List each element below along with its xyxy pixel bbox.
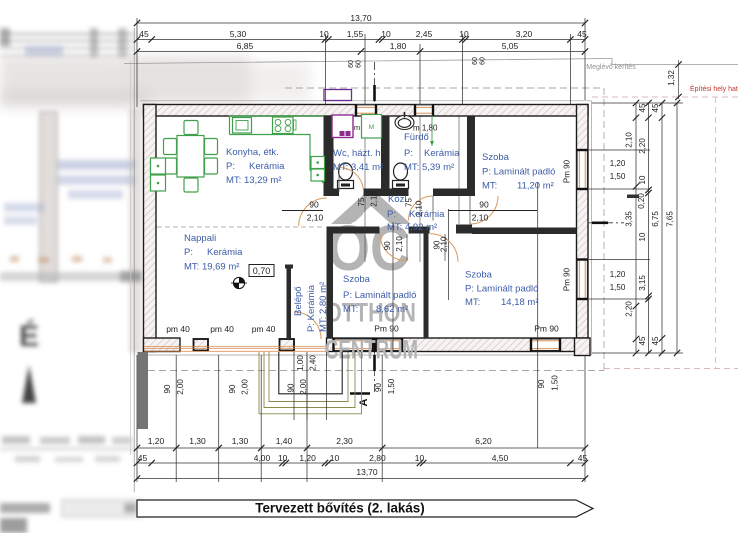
svg-text:Szoba: Szoba xyxy=(343,274,371,285)
svg-text:MT: 5,39 m²: MT: 5,39 m² xyxy=(404,162,454,173)
svg-text:P:: P: xyxy=(404,148,413,159)
svg-text:Pm 90: Pm 90 xyxy=(374,324,399,334)
svg-text:Tervezett bővítés (2. lakás): Tervezett bővítés (2. lakás) xyxy=(255,501,424,516)
svg-text:Konyha, étk.: Konyha, étk. xyxy=(226,147,279,158)
svg-text:MT: 19,69 m²: MT: 19,69 m² xyxy=(184,262,239,273)
svg-text:10: 10 xyxy=(459,29,469,39)
svg-text:45: 45 xyxy=(139,29,149,39)
svg-text:MT:: MT: xyxy=(343,304,358,315)
svg-text:P:: P: xyxy=(184,247,193,258)
svg-text:pm 40: pm 40 xyxy=(252,324,276,334)
svg-text:Kerámia: Kerámia xyxy=(424,148,460,159)
svg-text:P: Kerámia: P: Kerámia xyxy=(306,284,317,332)
svg-text:1,20: 1,20 xyxy=(148,436,165,446)
svg-text:2,10: 2,10 xyxy=(395,236,404,252)
svg-text:60: 60 xyxy=(480,57,487,65)
svg-text:1,50: 1,50 xyxy=(610,172,626,181)
svg-text:6,75: 6,75 xyxy=(651,211,660,227)
svg-text:2,45: 2,45 xyxy=(416,29,433,39)
svg-text:1,50: 1,50 xyxy=(551,375,560,391)
svg-text:90: 90 xyxy=(374,383,383,392)
svg-text:45: 45 xyxy=(578,453,588,463)
svg-text:10: 10 xyxy=(381,29,391,39)
svg-text:60: 60 xyxy=(356,60,363,68)
svg-text:Szoba: Szoba xyxy=(482,152,510,163)
svg-text:3,20: 3,20 xyxy=(516,29,533,39)
svg-text:CENTRUM: CENTRUM xyxy=(325,335,418,365)
svg-text:1,20: 1,20 xyxy=(299,453,316,463)
svg-text:A: A xyxy=(358,398,370,406)
svg-text:P: Laminált padló: P: Laminált padló xyxy=(343,290,416,301)
svg-text:MT: 4,92 m²: MT: 4,92 m² xyxy=(387,222,437,233)
svg-text:13,70: 13,70 xyxy=(350,13,372,23)
svg-text:45: 45 xyxy=(638,336,647,345)
svg-text:pm 40: pm 40 xyxy=(210,324,234,334)
svg-text:Nappali: Nappali xyxy=(184,233,216,244)
svg-text:45: 45 xyxy=(651,336,660,345)
svg-text:P:: P: xyxy=(226,161,235,172)
svg-text:Pm 90: Pm 90 xyxy=(563,267,572,291)
svg-text:1,50: 1,50 xyxy=(610,283,626,292)
svg-text:10: 10 xyxy=(330,453,340,463)
svg-text:6,85: 6,85 xyxy=(237,41,254,51)
svg-text:Közl.: Közl. xyxy=(388,194,409,205)
svg-text:5,05: 5,05 xyxy=(502,41,519,51)
svg-text:60: 60 xyxy=(472,57,479,65)
svg-text:Szoba: Szoba xyxy=(465,270,493,281)
svg-text:2,40: 2,40 xyxy=(309,355,318,371)
svg-text:1,40: 1,40 xyxy=(276,436,293,446)
svg-text:3,15: 3,15 xyxy=(638,275,647,291)
svg-text:MT:: MT: xyxy=(482,181,497,192)
svg-text:90: 90 xyxy=(479,200,489,210)
svg-text:2,20: 2,20 xyxy=(638,138,647,154)
svg-text:MT:: MT: xyxy=(465,297,480,308)
svg-text:90: 90 xyxy=(287,383,296,392)
svg-text:90: 90 xyxy=(163,384,172,393)
svg-text:45: 45 xyxy=(577,29,587,39)
svg-text:MT: 13,29 m²: MT: 13,29 m² xyxy=(226,175,281,186)
svg-text:Meglévő kerítés: Meglévő kerítés xyxy=(586,64,636,71)
svg-text:Kerámia: Kerámia xyxy=(249,161,285,172)
svg-text:Kerámia: Kerámia xyxy=(207,247,243,258)
svg-text:2,00: 2,00 xyxy=(299,379,308,395)
svg-text:Pm 90: Pm 90 xyxy=(563,159,572,183)
svg-text:É: É xyxy=(19,319,39,353)
svg-text:75: 75 xyxy=(357,197,366,206)
svg-text:P:: P: xyxy=(387,209,396,220)
svg-text:M: M xyxy=(369,124,374,131)
svg-text:2,20: 2,20 xyxy=(625,301,634,317)
svg-text:60: 60 xyxy=(348,60,355,68)
svg-text:P: Laminált padló: P: Laminált padló xyxy=(482,167,555,178)
svg-text:1,80: 1,80 xyxy=(390,41,407,51)
svg-text:m: m xyxy=(354,123,360,132)
svg-text:90: 90 xyxy=(228,384,237,393)
svg-text:14,18 m²: 14,18 m² xyxy=(501,297,539,308)
svg-text:P: Laminált padló: P: Laminált padló xyxy=(465,284,538,295)
svg-text:1,30: 1,30 xyxy=(232,436,249,446)
svg-text:3,35: 3,35 xyxy=(625,211,634,227)
svg-text:10: 10 xyxy=(638,175,647,184)
svg-text:2,00: 2,00 xyxy=(241,379,250,395)
svg-text:45: 45 xyxy=(638,103,647,112)
svg-text:4,50: 4,50 xyxy=(492,453,509,463)
svg-text:Wc, házt. h: Wc, házt. h xyxy=(333,148,381,159)
svg-text:6,20: 6,20 xyxy=(475,436,492,446)
svg-text:5,30: 5,30 xyxy=(230,29,247,39)
svg-text:1,30: 1,30 xyxy=(189,436,206,446)
svg-text:2,10: 2,10 xyxy=(440,236,449,252)
svg-text:2,10: 2,10 xyxy=(625,132,634,148)
svg-text:90: 90 xyxy=(383,241,392,250)
svg-text:1,55: 1,55 xyxy=(347,29,364,39)
svg-text:1,20: 1,20 xyxy=(610,159,626,168)
svg-text:Fürdő: Fürdő xyxy=(404,132,429,143)
svg-text:MT: 2,80 m²: MT: 2,80 m² xyxy=(318,282,329,332)
svg-text:13,70: 13,70 xyxy=(356,467,378,477)
svg-text:1,32: 1,32 xyxy=(667,70,676,86)
svg-text:10: 10 xyxy=(415,453,425,463)
svg-text:10: 10 xyxy=(638,232,647,241)
svg-text:Kerámia: Kerámia xyxy=(409,209,445,220)
svg-text:Belépő: Belépő xyxy=(293,286,304,316)
svg-text:1,00: 1,00 xyxy=(296,355,305,371)
svg-text:1,20: 1,20 xyxy=(610,270,626,279)
svg-text:2,30: 2,30 xyxy=(336,436,353,446)
svg-text:2,10: 2,10 xyxy=(370,191,379,207)
svg-text:MT: 3,41 m²: MT: 3,41 m² xyxy=(333,162,383,173)
svg-text:4,00: 4,00 xyxy=(254,453,271,463)
svg-text:2,10: 2,10 xyxy=(472,213,489,223)
svg-text:90: 90 xyxy=(309,200,319,210)
svg-text:Építési hely hatá: Építési hely hatá xyxy=(690,84,738,93)
svg-text:10: 10 xyxy=(319,29,329,39)
svg-text:0,70: 0,70 xyxy=(253,266,271,276)
svg-text:2,00: 2,00 xyxy=(176,379,185,395)
svg-text:2,10: 2,10 xyxy=(307,213,324,223)
svg-text:45: 45 xyxy=(651,103,660,112)
svg-text:Pm 90: Pm 90 xyxy=(534,324,559,334)
svg-text:11,20 m²: 11,20 m² xyxy=(517,181,554,192)
svg-text:90: 90 xyxy=(537,379,546,388)
svg-text:8,62 m²: 8,62 m² xyxy=(376,304,408,315)
svg-text:45: 45 xyxy=(138,453,148,463)
svg-text:2,80: 2,80 xyxy=(369,453,386,463)
svg-text:10: 10 xyxy=(278,453,288,463)
svg-text:pm 40: pm 40 xyxy=(166,324,190,334)
svg-text:1,50: 1,50 xyxy=(387,378,396,394)
svg-text:7,65: 7,65 xyxy=(666,211,675,227)
